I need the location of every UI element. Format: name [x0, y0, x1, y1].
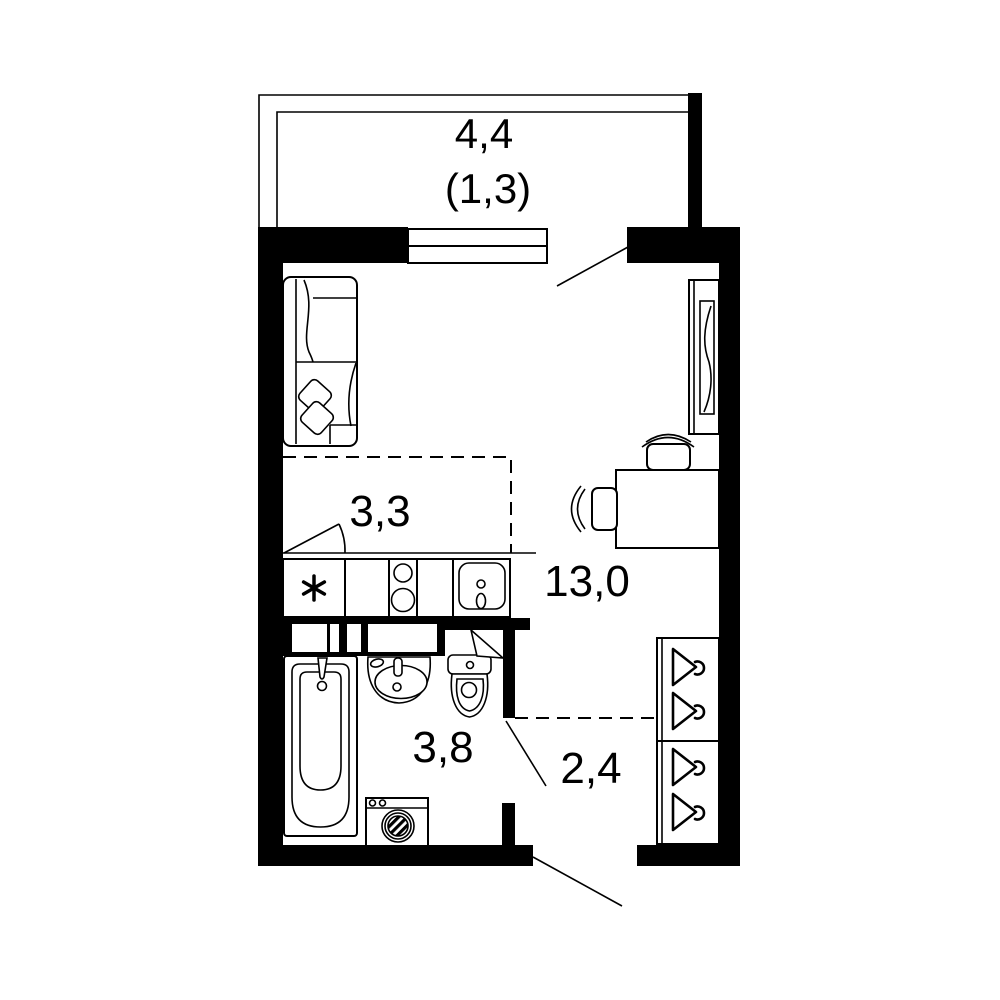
washbasin-icon [368, 657, 430, 703]
toilet-icon [448, 655, 491, 717]
chair-icon [642, 435, 694, 471]
wall-top-left [258, 227, 408, 263]
floor-plan-drawing: 4,4 (1,3) 3,3 13,0 3,8 2,4 [0, 0, 1000, 1000]
desk-icon [616, 470, 719, 548]
tv-wardrobe-icon [689, 280, 719, 434]
bathroom-door-swing [471, 630, 503, 658]
kitchen-area-label: 3,3 [349, 487, 410, 536]
wall-left [258, 227, 283, 866]
bathtub-icon [284, 656, 357, 836]
wall-bottom-right [637, 845, 740, 866]
entrance-door-swing [533, 857, 622, 906]
balcony-reduced-area-label: (1,3) [445, 165, 531, 212]
wall-bottom-left [258, 845, 533, 866]
kitchen-sink-icon [459, 563, 505, 609]
hallway-leader-line [506, 721, 546, 786]
duct-opening [330, 624, 339, 652]
duct-opening [292, 624, 327, 652]
hallway-area-label: 2,4 [560, 744, 621, 793]
kitchen-counter-icon [283, 553, 536, 617]
kitchen-door-swing [284, 524, 345, 553]
window [408, 229, 547, 263]
wall-bathroom-top-band [445, 618, 530, 630]
basin-faucet-icon [394, 658, 402, 676]
hanger-wardrobe-icon [657, 638, 719, 844]
washing-machine-icon [366, 798, 428, 846]
living-room-area-label: 13,0 [544, 557, 630, 606]
bathroom-area-label: 3,8 [412, 723, 473, 772]
balcony-pillar [688, 93, 702, 228]
duct-opening [368, 624, 437, 652]
balcony-door-swing [557, 247, 628, 286]
wall-stub-entrance [502, 803, 515, 846]
chair-icon [572, 486, 618, 532]
duct-opening [347, 624, 361, 652]
sofa-icon [283, 277, 357, 446]
wall-bathroom-right [503, 630, 515, 718]
balcony-area-label: 4,4 [455, 110, 513, 157]
floor-plan: 4,4 (1,3) 3,3 13,0 3,8 2,4 [0, 0, 1000, 1000]
wall-right [719, 227, 740, 866]
